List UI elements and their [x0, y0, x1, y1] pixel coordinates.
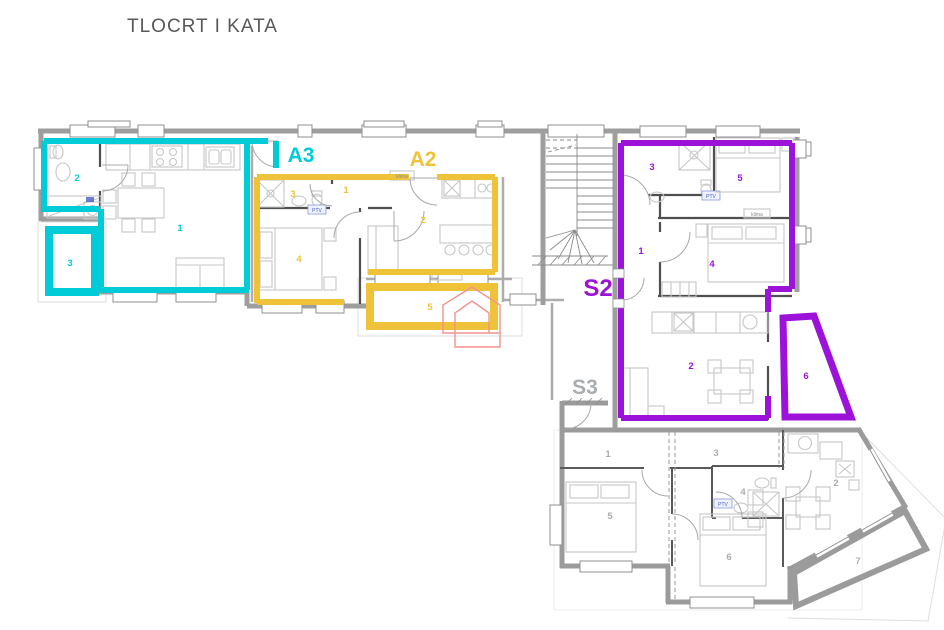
- balcony-s2-outline: [783, 316, 851, 417]
- room-number-a3-1: 1: [177, 223, 183, 234]
- room-number-s2-6: 6: [803, 371, 808, 382]
- room-number-a2-5: 5: [427, 302, 433, 313]
- room-number-s2-1: 1: [638, 246, 644, 257]
- unit-label-s2: S2: [583, 275, 612, 302]
- room-number-s2-4: 4: [709, 259, 715, 270]
- unit-label-a2: A2: [410, 148, 437, 171]
- doors: [102, 141, 811, 540]
- annotation-klima-0: klima: [396, 174, 408, 180]
- interior-walls: [100, 137, 795, 567]
- annotation-ptv-2: PTV: [312, 208, 322, 214]
- room-number-s2-5: 5: [737, 173, 743, 184]
- floor-plan-page: TLOCRT I KATA: [0, 0, 944, 630]
- furniture-a3: [47, 144, 240, 288]
- room-number-a3-2: 2: [74, 173, 79, 184]
- room-number-a2-1: 1: [343, 185, 349, 196]
- room-number-s2-3: 3: [649, 162, 654, 173]
- room-number-s2-2: 2: [688, 361, 693, 372]
- annotation-ptv-4: PTV: [718, 502, 728, 508]
- room-number-a2-4: 4: [296, 254, 302, 265]
- room-number-s3-4: 4: [740, 487, 746, 498]
- unit-s2-outline: [613, 143, 851, 418]
- page-title: TLOCRT I KATA: [127, 16, 278, 37]
- room-number-a2-3: 3: [290, 189, 295, 200]
- room-number-s3-1: 1: [605, 449, 611, 460]
- room-number-s3-3: 3: [713, 448, 718, 459]
- annotation-ptv-3: PTV: [706, 194, 716, 200]
- unit-label-a3: A3: [288, 144, 315, 167]
- unit-label-s3: S3: [572, 376, 598, 399]
- room-number-s3-2: 2: [833, 478, 838, 489]
- room-number-s3-5: 5: [607, 511, 613, 522]
- room-number-s3-7: 7: [855, 556, 860, 567]
- room-number-s3-6: 6: [726, 552, 731, 563]
- room-number-a2-2: 2: [420, 215, 425, 226]
- room-number-a3-3: 3: [67, 258, 72, 269]
- floor-plan-canvas: TLOCRT I KATA: [0, 0, 944, 630]
- annotation-klima-1: klima: [751, 212, 763, 218]
